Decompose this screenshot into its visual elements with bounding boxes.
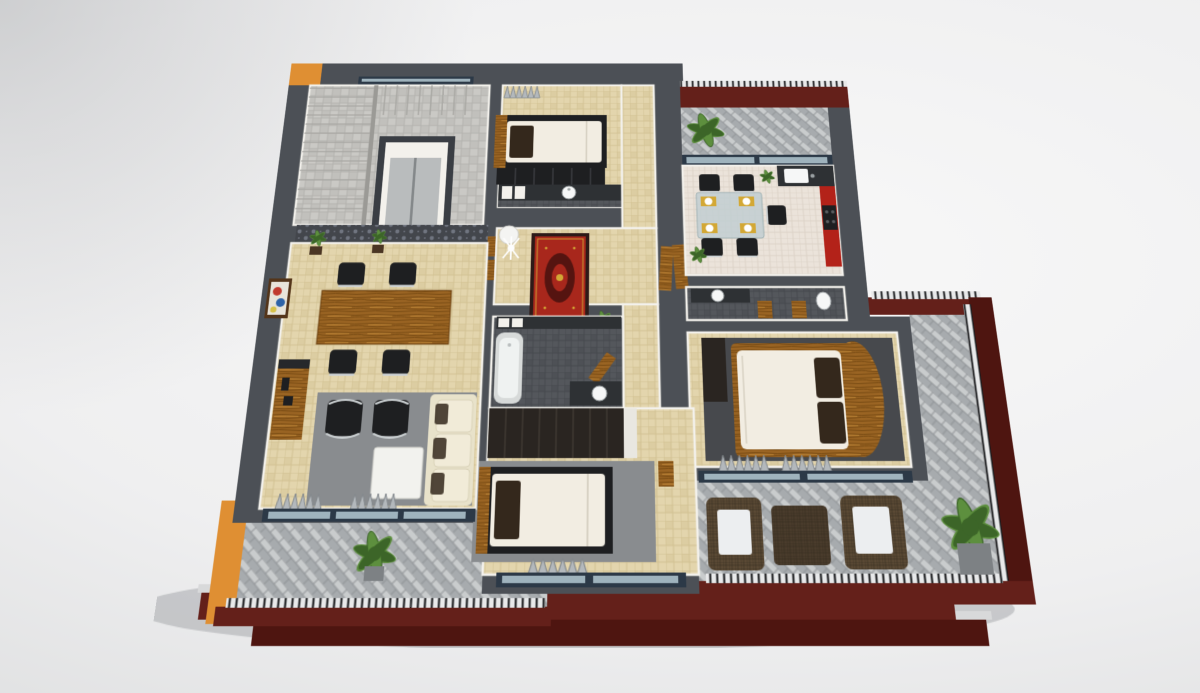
floor-plan-3d-render (0, 0, 1200, 693)
sliding-door-south (262, 509, 476, 522)
wood-door (658, 461, 674, 487)
chair (337, 263, 366, 286)
wicker-armchair-left (706, 498, 765, 571)
cream-sofa (424, 394, 477, 505)
bedroom-south (470, 408, 699, 587)
kitchen-counter (777, 166, 835, 187)
chair (701, 238, 723, 256)
wood-door (757, 301, 772, 318)
single-bed (493, 115, 606, 168)
chair (736, 238, 758, 256)
wardrobe-block (487, 408, 637, 458)
wood-door (791, 301, 807, 318)
orange-accent-wall (289, 63, 323, 85)
bedroom-master (687, 332, 913, 482)
stair-lobby (291, 85, 489, 243)
south-window (496, 573, 686, 588)
floor-plan-svg (149, 45, 1060, 648)
bathroom-central (489, 317, 623, 409)
south-window (698, 471, 913, 483)
chair (767, 205, 787, 225)
glass-dining-table (696, 193, 764, 239)
vanity-strip (498, 185, 622, 207)
chair (389, 263, 417, 286)
lounge-chair (371, 400, 409, 438)
bathroom-east (686, 287, 847, 320)
coffee-table (370, 447, 423, 498)
stove (822, 205, 838, 229)
dining-table (316, 290, 451, 344)
floor-plan-perspective-wrapper (149, 45, 1060, 648)
balcony-railing (680, 81, 847, 87)
bed-bench (496, 168, 605, 185)
bathtub (493, 332, 523, 403)
red-oriental-rug (529, 233, 589, 323)
wicker-armchair-right (840, 496, 909, 570)
single-bed (476, 467, 613, 554)
elevator-shaft (371, 136, 455, 231)
lounge-chair (324, 400, 363, 438)
chair (381, 350, 410, 375)
wicker-ottoman (771, 506, 832, 566)
sliding-glass-door (682, 155, 833, 166)
chair (328, 350, 358, 375)
dark-wardrobe (701, 338, 727, 402)
chair (699, 174, 720, 191)
bedroom-north (492, 85, 623, 207)
double-bed (731, 341, 890, 457)
chair (733, 174, 755, 191)
